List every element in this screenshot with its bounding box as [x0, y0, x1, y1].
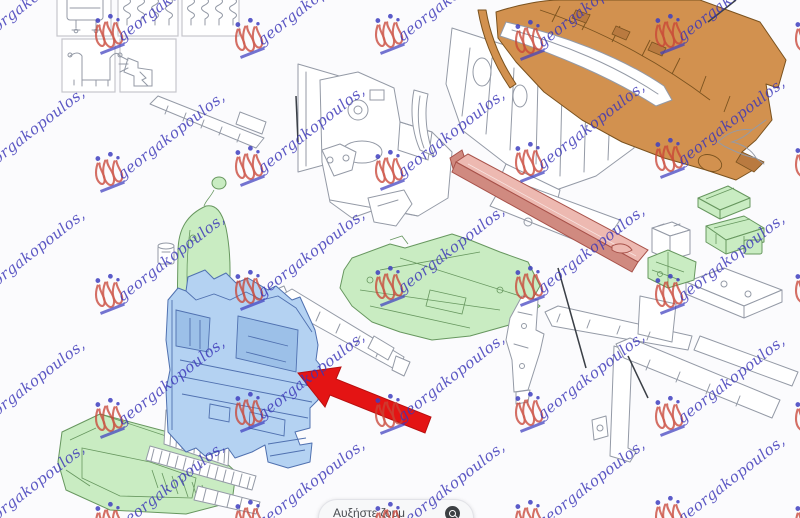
magnifier-icon: [445, 506, 460, 518]
zoom-button-label: Αυξήστε ζουμ: [333, 506, 405, 518]
battery-tray: [706, 216, 764, 254]
inner-fender-assembly: [296, 64, 452, 226]
exploded-parts-drawing: [0, 0, 800, 518]
zoom-button[interactable]: Αυξήστε ζουμ: [318, 499, 474, 518]
upper-left-rail: [150, 96, 266, 148]
small-canister: [158, 243, 174, 264]
right-chassis-parts: [545, 268, 798, 462]
thumbnail-boxes: [57, 0, 239, 92]
battery-tray-cover: [698, 186, 750, 219]
front-panel-highlighted: [166, 270, 320, 468]
parts-diagram-image: Αυξήστε ζουμ georgakopoulos, georgakopou…: [0, 0, 800, 518]
